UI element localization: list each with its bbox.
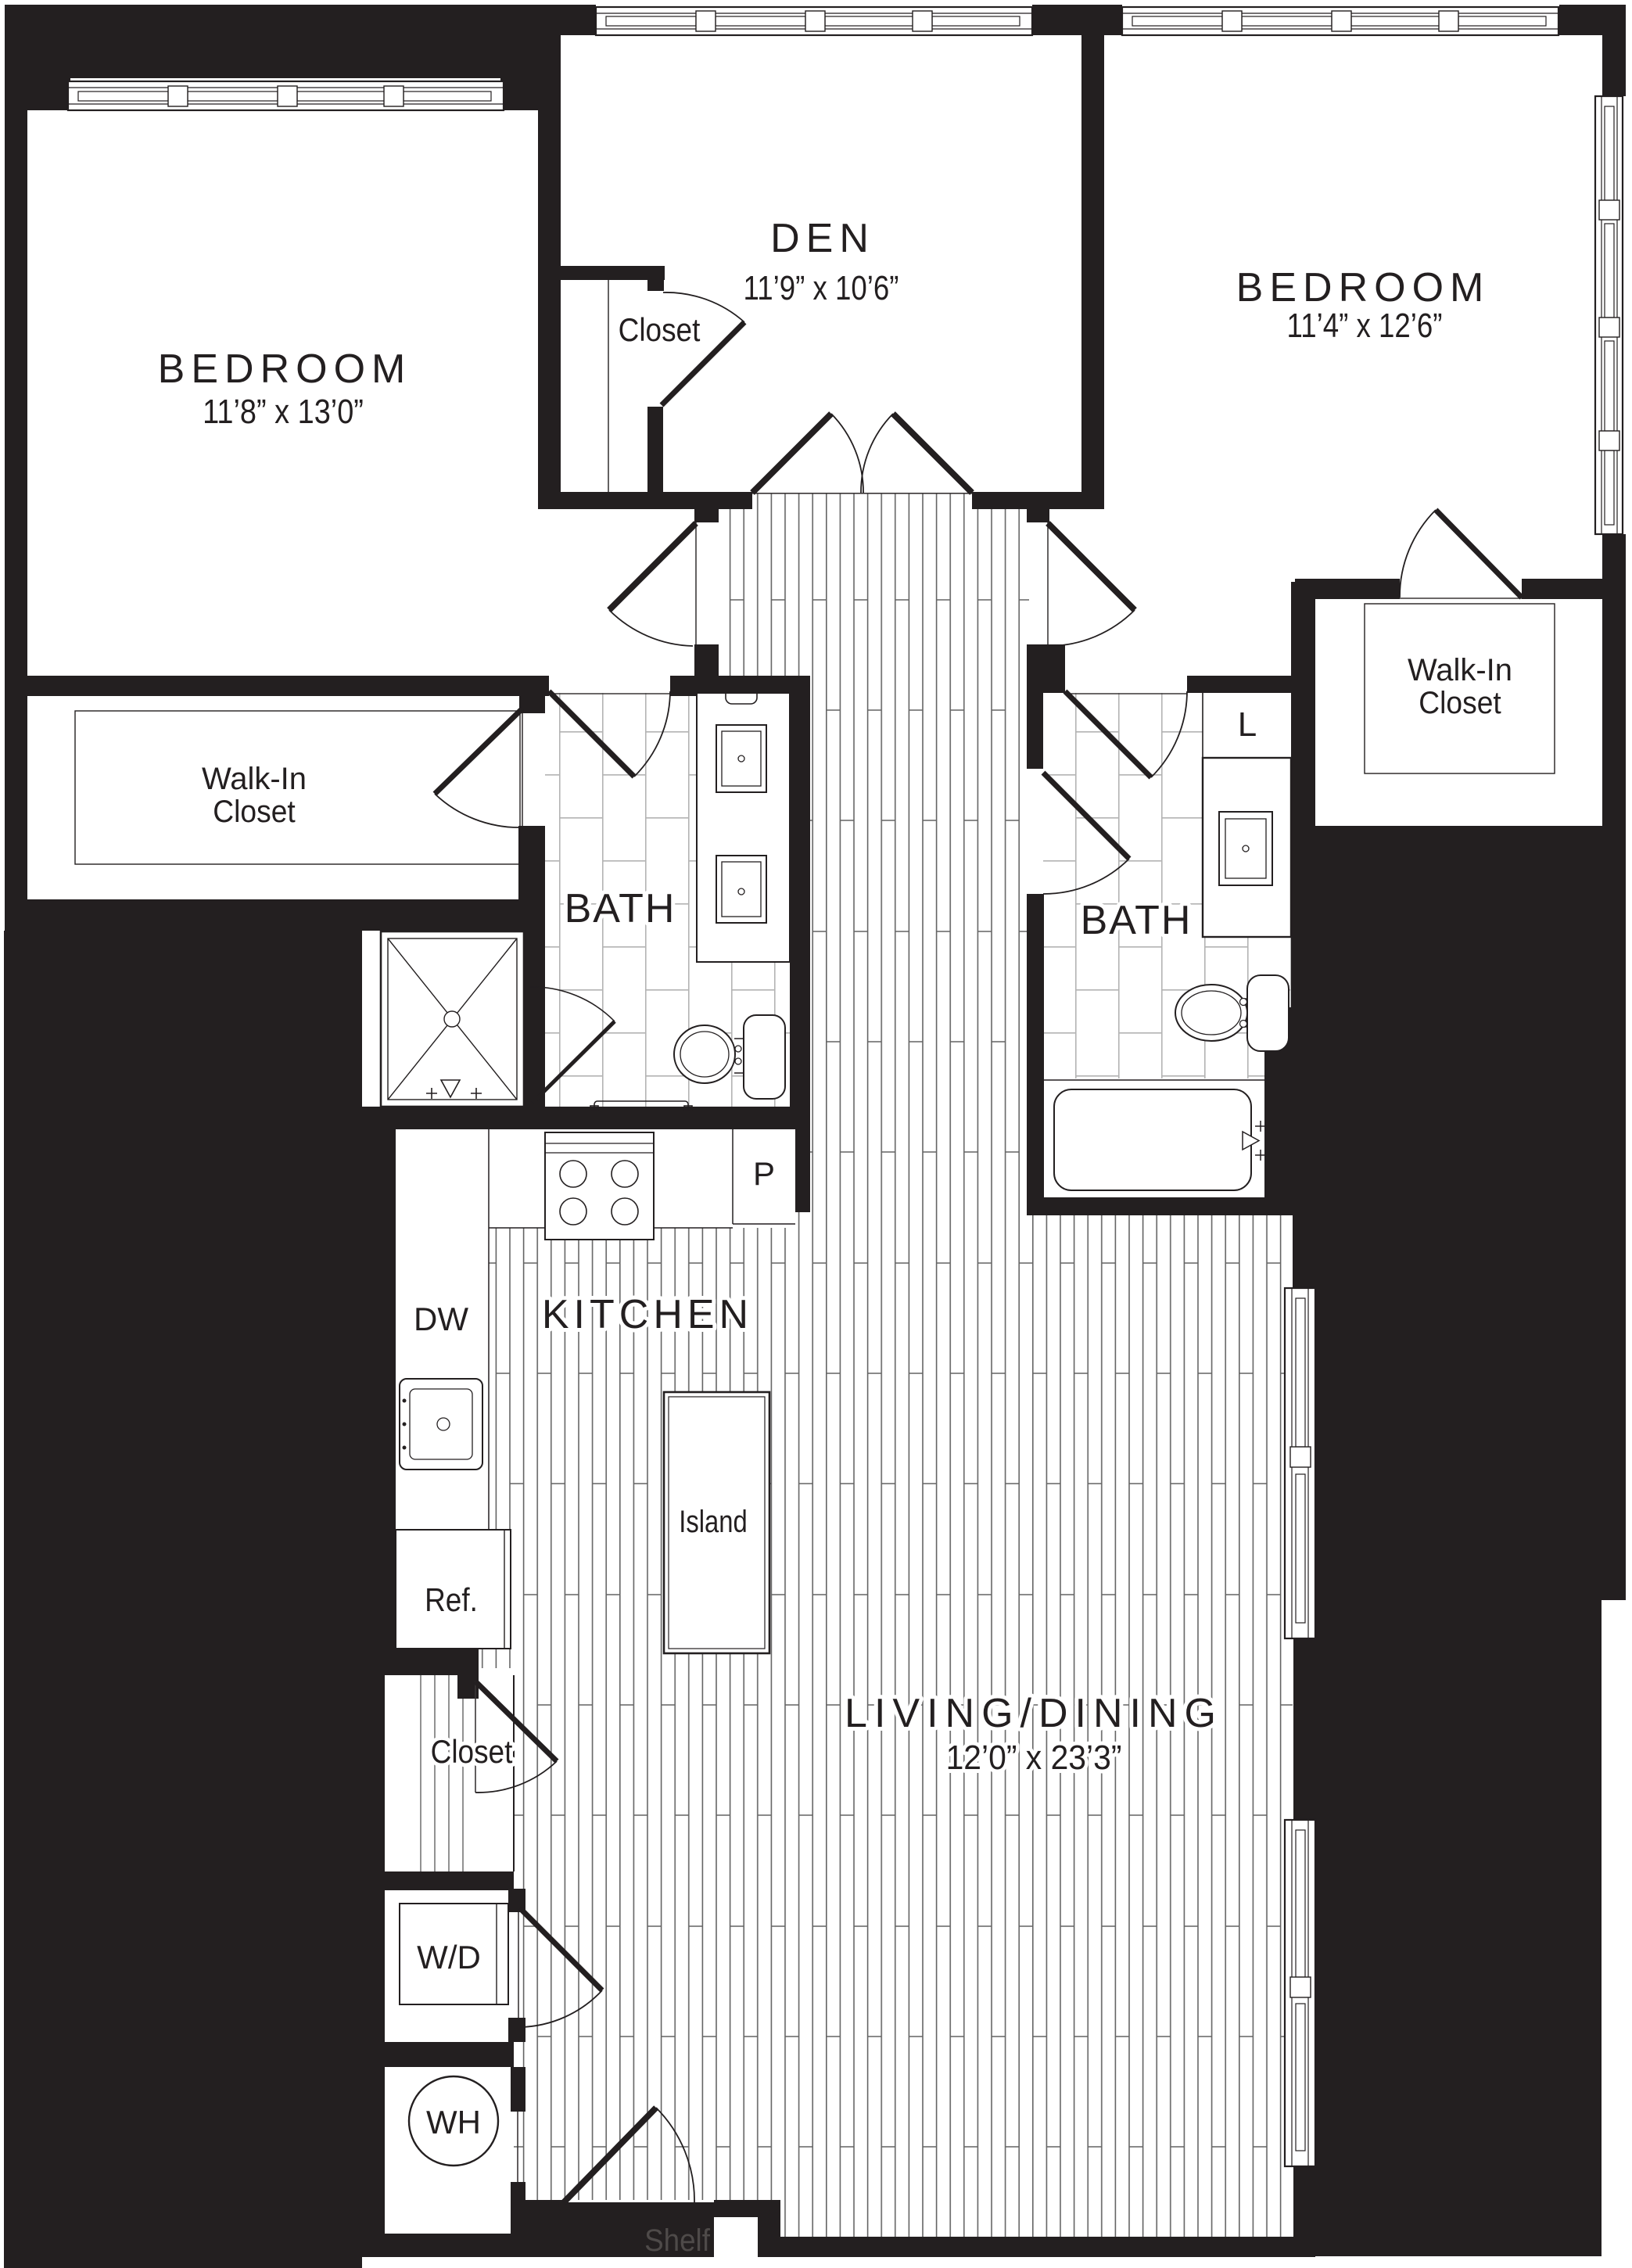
svg-text:P: P	[753, 1155, 775, 1192]
svg-text:BATH: BATH	[1081, 898, 1193, 943]
svg-text:Closet: Closet	[213, 795, 296, 830]
svg-text:Closet: Closet	[431, 1734, 513, 1771]
svg-text:BATH: BATH	[565, 886, 676, 931]
svg-text:KITCHEN: KITCHEN	[542, 1292, 753, 1337]
svg-text:12’0” x 23’3”: 12’0” x 23’3”	[946, 1739, 1122, 1777]
svg-text:Island: Island	[679, 1504, 748, 1539]
svg-text:L: L	[1238, 705, 1257, 744]
svg-text:Ref.: Ref.	[425, 1582, 478, 1619]
svg-text:Walk-In: Walk-In	[202, 762, 307, 796]
svg-text:LIVING/DINING: LIVING/DINING	[845, 1691, 1223, 1736]
svg-text:DEN: DEN	[770, 216, 875, 261]
svg-text:11’8” x 13’0”: 11’8” x 13’0”	[203, 392, 364, 430]
svg-text:WH: WH	[426, 2104, 481, 2141]
svg-text:Shelf: Shelf	[644, 2223, 710, 2259]
svg-text:11’9” x 10’6”: 11’9” x 10’6”	[744, 268, 899, 307]
svg-text:Closet: Closet	[619, 312, 701, 349]
svg-text:DW: DW	[414, 1301, 468, 1337]
svg-text:BEDROOM: BEDROOM	[158, 346, 412, 392]
svg-text:Closet: Closet	[1419, 686, 1501, 721]
svg-text:BEDROOM: BEDROOM	[1236, 265, 1490, 310]
svg-text:Walk-In: Walk-In	[1408, 653, 1512, 687]
svg-text:W/D: W/D	[417, 1939, 481, 1976]
svg-text:11’4” x 12’6”: 11’4” x 12’6”	[1287, 306, 1443, 345]
